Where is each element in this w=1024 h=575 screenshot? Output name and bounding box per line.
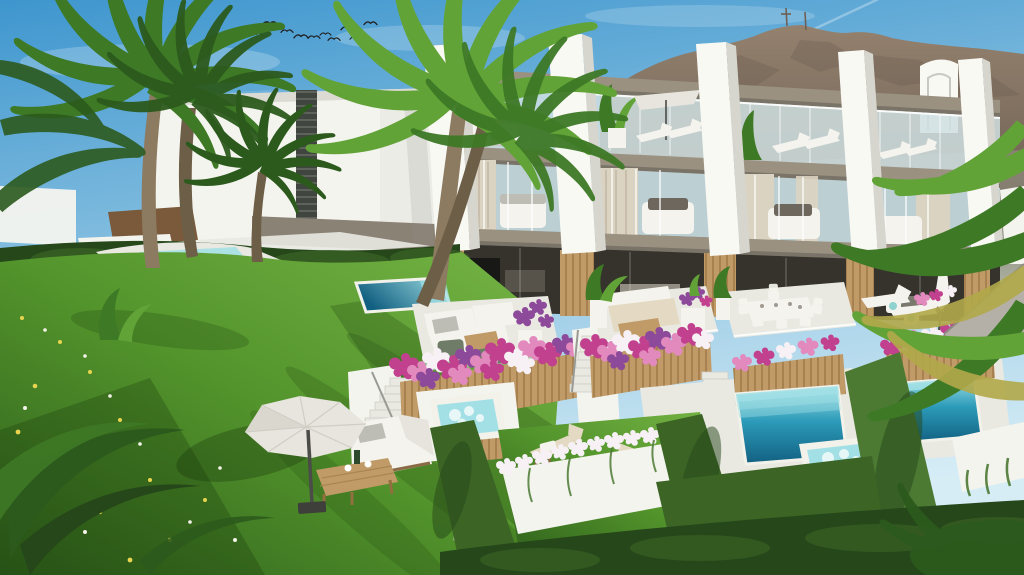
parasol-base bbox=[298, 501, 327, 514]
table-cup bbox=[345, 465, 352, 472]
dining-chair bbox=[776, 312, 788, 329]
unit3-pot bbox=[716, 296, 730, 320]
interior-sofa bbox=[505, 270, 545, 292]
table-cup bbox=[365, 461, 372, 468]
scene-canvas: New-build townhouses with private pools,… bbox=[0, 0, 1024, 575]
dining-chair bbox=[768, 284, 780, 300]
table-bottle bbox=[354, 450, 360, 464]
render-image: New-build townhouses with private pools,… bbox=[0, 0, 1024, 575]
unit2-pot bbox=[590, 300, 607, 328]
